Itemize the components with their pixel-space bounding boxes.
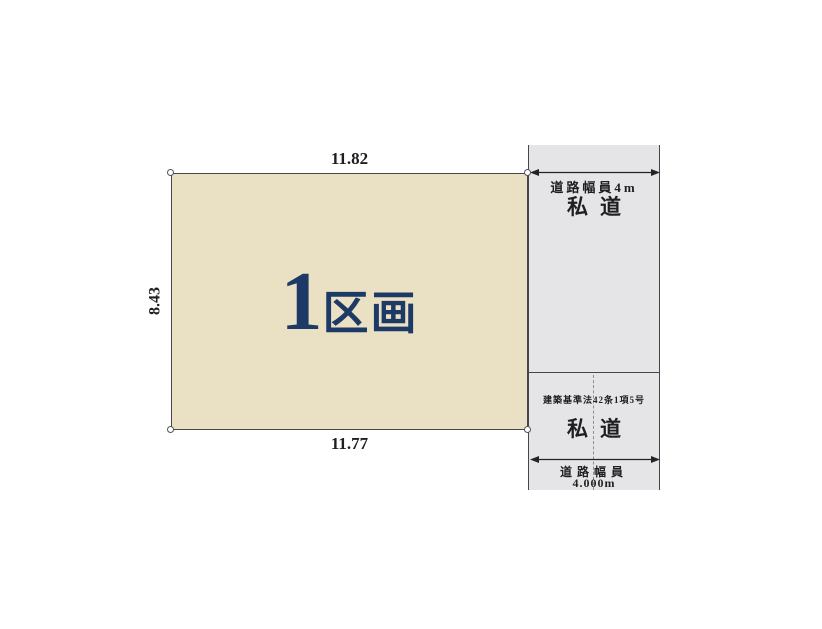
road-width-arrow-icon [530, 168, 660, 177]
corner-marker-top-right [524, 169, 531, 176]
private-road-label-lower: 私道 [529, 413, 671, 443]
dimension-bottom: 11.77 [171, 434, 528, 454]
road-width-value-lower: 4.000m [529, 476, 659, 491]
parcel-unit-label: 区画 [323, 288, 419, 339]
parcel-number: 1 [281, 255, 323, 348]
land-plot-diagram: 1区画 11.82 11.77 8.43 8.44 道路幅員4m 私道 建築基準… [0, 0, 822, 629]
private-road-strip: 道路幅員4m 私道 建築基準法42条1項5号 私道 道路幅員 4.000m [528, 145, 660, 490]
corner-marker-bottom-right [524, 426, 531, 433]
corner-marker-bottom-left [167, 426, 174, 433]
road-section-divider [529, 372, 659, 373]
corner-marker-top-left [167, 169, 174, 176]
parcel-1: 1区画 [171, 173, 528, 430]
building-standards-law-label: 建築基準法42条1項5号 [529, 393, 659, 406]
dimension-top: 11.82 [171, 149, 528, 169]
parcel-label: 1区画 [281, 260, 419, 344]
dimension-left: 8.43 [147, 173, 167, 430]
private-road-label-upper: 私道 [529, 191, 671, 221]
